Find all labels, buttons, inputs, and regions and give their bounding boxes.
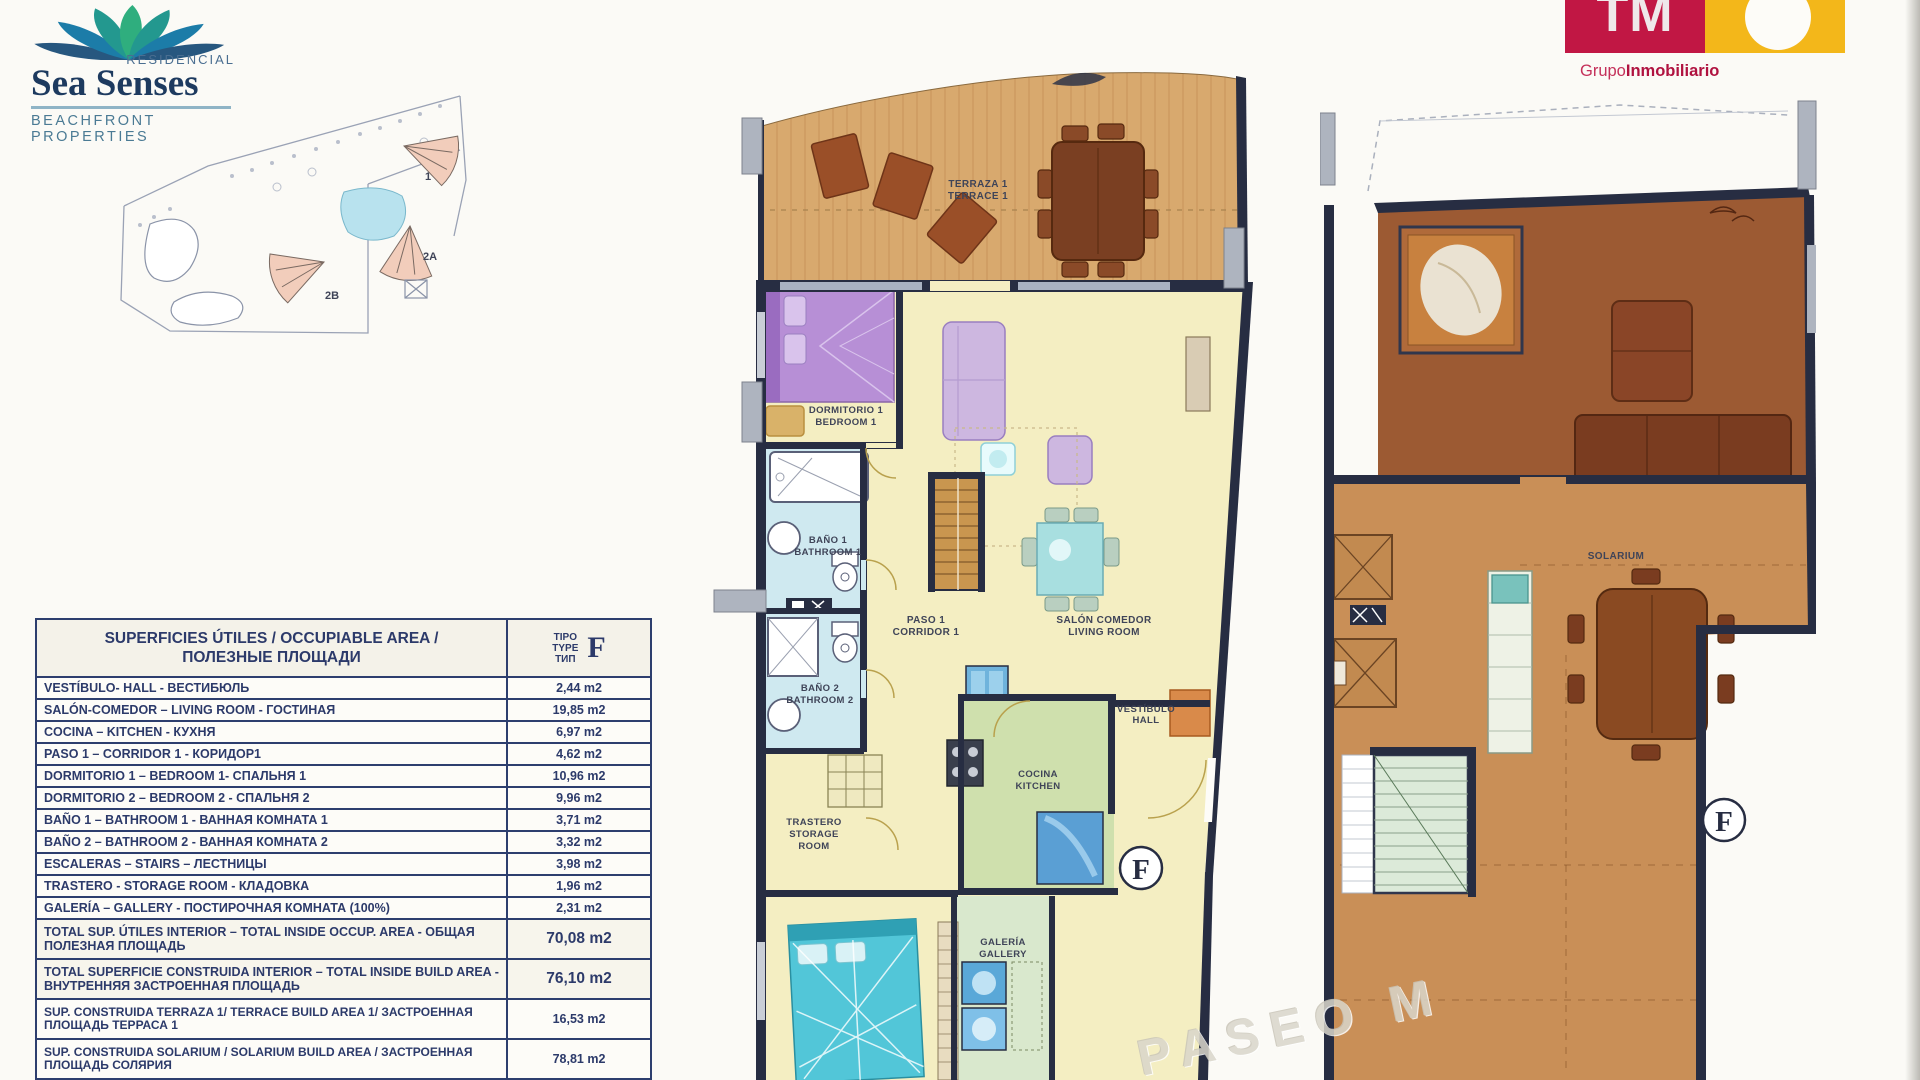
table-row-trastero: TRASTERO - STORAGE ROOM - КЛАДОВКА1,96 m… [37, 874, 650, 896]
label-cocina: COCINA [1018, 769, 1058, 780]
stairs-solarium [1342, 747, 1476, 897]
table-row-cocina: COCINA – KITCHEN - КУХНЯ6,97 m2 [37, 720, 650, 742]
label-vestibulo: VESTÍBULO [1117, 704, 1175, 715]
site-pool [341, 188, 406, 240]
label-paso1: PASO 1 [907, 615, 945, 626]
tm-logo-circle [1745, 0, 1811, 50]
site-garden-blobs [145, 219, 243, 325]
svg-text:GALLERY: GALLERY [979, 949, 1027, 960]
toilet-2 [832, 622, 858, 662]
bed-double [766, 290, 894, 402]
tm-inmobiliario-label: Inmobiliario [1626, 62, 1720, 80]
type-badge-main: F [1120, 847, 1162, 889]
type-column-header: TIPO TYPE ТИП F [506, 620, 650, 676]
svg-text:TERRACE 1: TERRACE 1 [948, 191, 1008, 202]
label-galeria: GALERÍA [980, 937, 1026, 948]
svg-text:F: F [1715, 806, 1733, 838]
bathtub [770, 452, 868, 502]
tm-logo-red-square: TM [1565, 0, 1705, 53]
hatch-icon [1350, 605, 1386, 625]
site-label-2a: 2A [423, 251, 437, 263]
svg-text:KITCHEN: KITCHEN [1015, 781, 1060, 792]
fridge [1037, 812, 1103, 884]
floor-plan-main: TERRAZA 1 TERRACE 1 DORMITORIO 1 BEDROOM… [700, 60, 1270, 1080]
sea-senses-fan-icon [23, 0, 238, 60]
scanned-floorplan-page: RESIDENCIAL Sea Senses BEACHFRONT PROPER… [0, 0, 1920, 1080]
area-table-title: SUPERFICIES ÚTILES / OCCUPIABLE AREA / П… [37, 620, 506, 676]
table-row-terraza: SUP. CONSTRUIDA TERRAZA 1/ TERRACE BUILD… [37, 998, 650, 1038]
table-row-paso1: PASO 1 – CORRIDOR 1 - КОРИДОР14,62 m2 [37, 742, 650, 764]
table-row-vestibulo: VESTÍBULO- HALL - ВЕСТИБЮЛЬ2,44 m2 [37, 676, 650, 698]
table-row-dormitorio2: DORMITORIO 2 – BEDROOM 2 - СПАЛЬНЯ 29,96… [37, 786, 650, 808]
label-bano2: BAÑO 2 [801, 683, 839, 694]
site-label-1: 1 [425, 171, 431, 183]
armchair [1048, 436, 1092, 484]
svg-text:STORAGE: STORAGE [789, 829, 839, 840]
table-row-escaleras: ESCALERAS – STAIRS – ЛЕСТНИЦЫ3,98 m2 [37, 852, 650, 874]
site-building-2b [264, 238, 333, 306]
svg-text:LIVING ROOM: LIVING ROOM [1068, 627, 1140, 638]
tm-grupo-label: Grupo [1580, 62, 1626, 80]
skylight-flat [1334, 535, 1392, 599]
coffee-table [981, 443, 1015, 475]
svg-text:BATHROOM 1: BATHROOM 1 [794, 547, 861, 558]
table-row-solarium: SUP. CONSTRUIDA SOLARIUM / SOLARIUM BUIL… [37, 1038, 650, 1078]
area-table: SUPERFICIES ÚTILES / OCCUPIABLE AREA / П… [35, 618, 652, 1080]
jacuzzi [1400, 227, 1522, 353]
table-row-salon: SALÓN-COMEDOR – LIVING ROOM - ГОСТИНАЯ19… [37, 698, 650, 720]
site-plan-sketch: 1 2A 2B [112, 84, 482, 349]
bed-2 [788, 919, 924, 1080]
svg-text:BEDROOM 1: BEDROOM 1 [815, 417, 876, 428]
bedroom1-rug [766, 406, 804, 436]
svg-text:ROOM: ROOM [798, 841, 829, 852]
skylight-pyramid [1334, 639, 1396, 707]
sofa [943, 322, 1005, 440]
living-cabinet [1186, 337, 1210, 411]
svg-text:CORRIDOR 1: CORRIDOR 1 [893, 627, 960, 638]
label-solarium: SOLARIUM [1588, 551, 1645, 562]
solarium-counter [1488, 571, 1532, 753]
svg-text:F: F [1132, 854, 1150, 886]
shower [768, 618, 818, 676]
tm-logo-yellow-square [1705, 0, 1845, 53]
table-row-bano1: BAÑO 1 – BATHROOM 1 - ВАННАЯ КОМНАТА 13,… [37, 808, 650, 830]
type-letter: F [587, 631, 605, 665]
svg-text:BATHROOM 2: BATHROOM 2 [786, 695, 853, 706]
table-row-galeria: GALERÍA – GALLERY - ПОСТИРОЧНАЯ КОМНАТА … [37, 896, 650, 918]
area-table-header: SUPERFICIES ÚTILES / OCCUPIABLE AREA / П… [37, 620, 650, 676]
stove [947, 740, 983, 786]
stairs-storage [828, 755, 882, 807]
site-label-2b: 2B [325, 290, 339, 302]
label-salon: SALÓN COMEDOR [1056, 613, 1152, 626]
label-dormitorio1: DORMITORIO 1 [809, 405, 884, 416]
stairs-main [933, 478, 983, 590]
label-bano1: BAÑO 1 [809, 535, 848, 546]
label-terraza: TERRAZA 1 [948, 179, 1007, 190]
svg-text:HALL: HALL [1133, 715, 1160, 726]
type-badge-solarium: F [1703, 799, 1745, 841]
table-row-dormitorio1: DORMITORIO 1 – BEDROOM 1- СПАЛЬНЯ 110,96… [37, 764, 650, 786]
roof-outline [1368, 105, 1788, 191]
label-trastero: TRASTERO [786, 817, 841, 828]
table-row-total-construida: TOTAL SUPERFICIE CONSTRUIDA INTERIOR – T… [37, 958, 650, 998]
tm-monogram: TM [1596, 0, 1673, 44]
scan-edge-shadow [1905, 0, 1920, 1080]
site-small-house [405, 280, 427, 298]
table-row-total-utiles: TOTAL SUP. ÚTILES INTERIOR – TOTAL INSID… [37, 918, 650, 958]
terrace-dining-set [1038, 124, 1158, 277]
floor-plan-solarium: SOLARIUM F [1320, 95, 1840, 1080]
entry-mat [1170, 690, 1210, 736]
table-row-bano2: BAÑO 2 – BATHROOM 2 - ВАННАЯ КОМНАТА 23,… [37, 830, 650, 852]
tm-logo-caption: GrupoInmobiliario [1580, 62, 1719, 81]
